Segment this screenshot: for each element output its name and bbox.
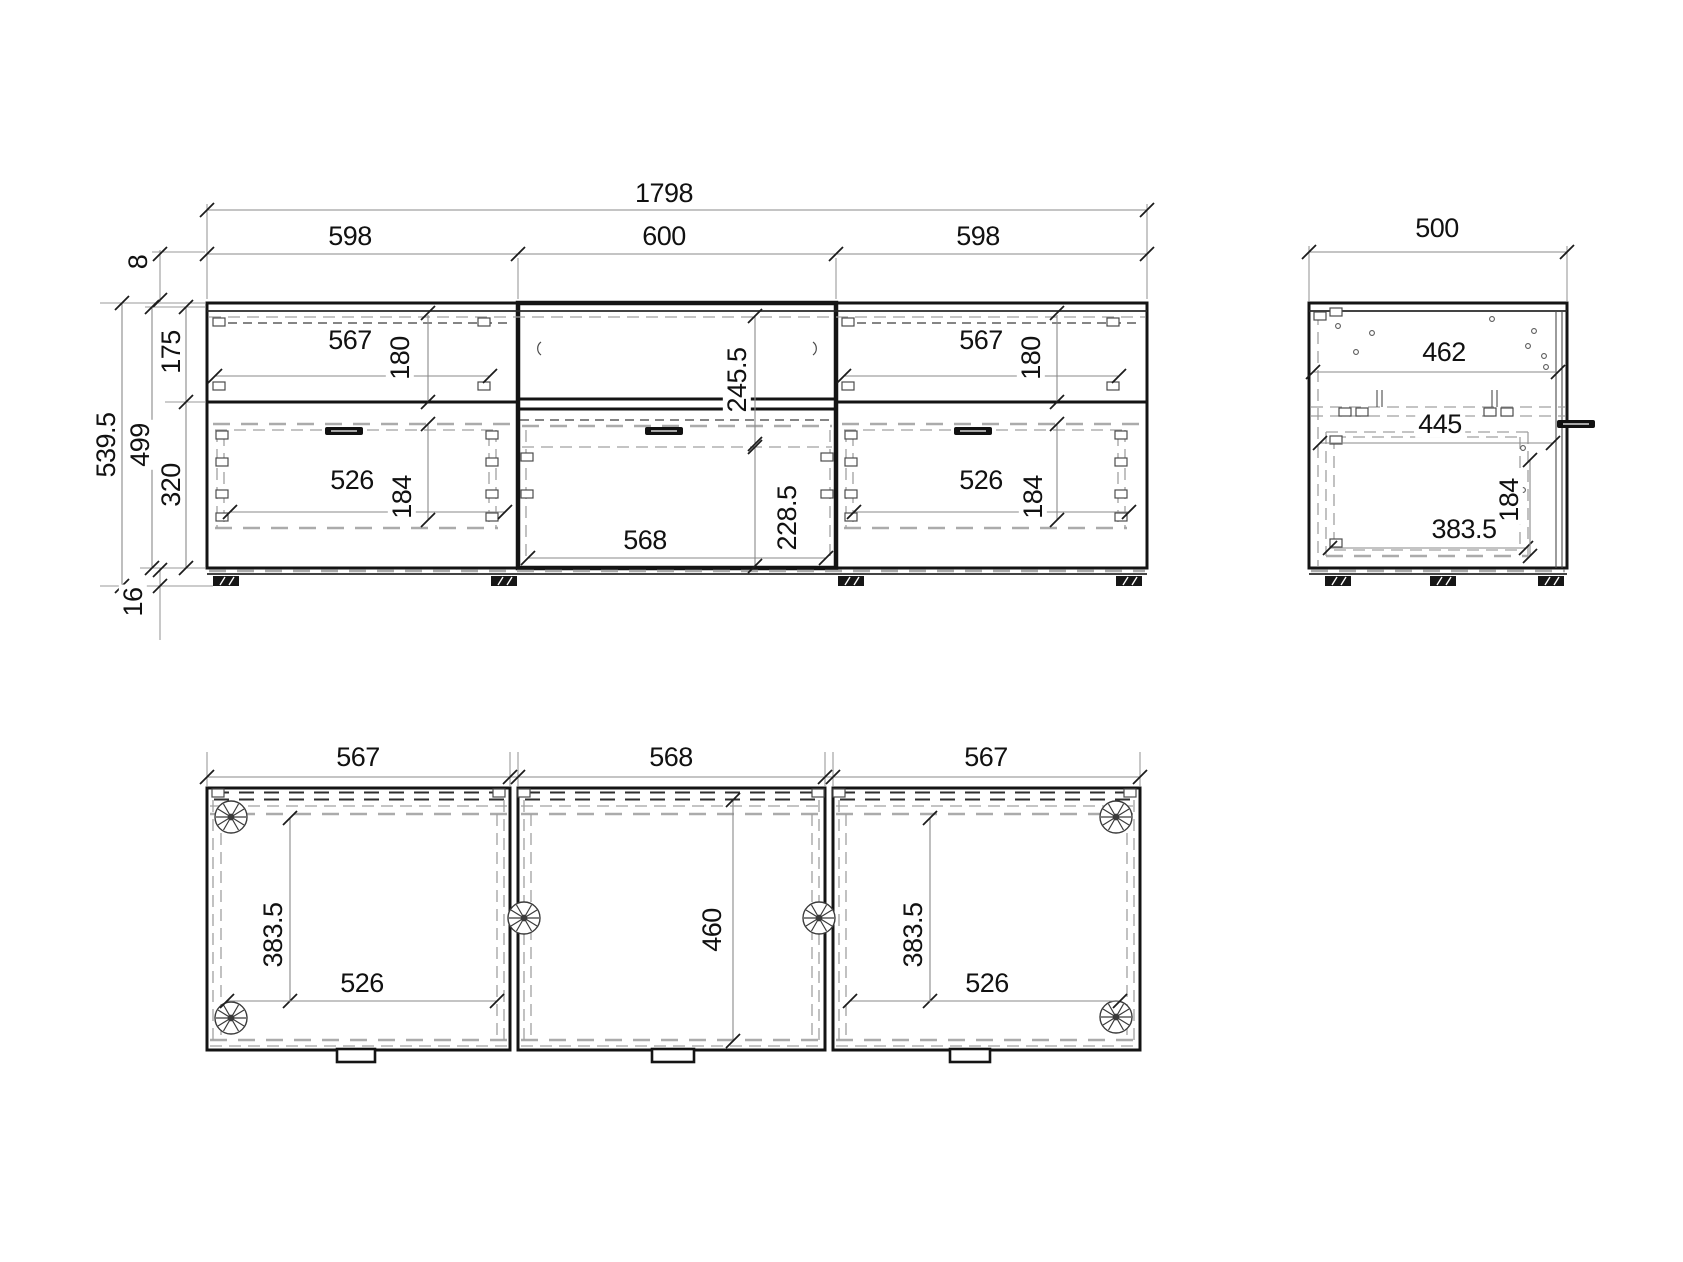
dim-right-drawer-bot-w: 526 xyxy=(956,466,1006,494)
side-handle xyxy=(1557,420,1595,428)
front-top-dimensions xyxy=(200,203,1154,299)
dim-middle-open-height: 245.5 xyxy=(723,344,751,415)
dim-plan-right-width: 526 xyxy=(962,969,1012,997)
dim-right-drawer-top-h: 180 xyxy=(1017,333,1045,383)
plan-casters xyxy=(215,801,1132,1034)
dim-side-drawer-height: 184 xyxy=(1495,475,1523,525)
technical-drawing-sheet: 1798 598 600 598 8 539.5 499 175 320 16 … xyxy=(0,0,1683,1262)
dim-left-drawer-bot-w: 526 xyxy=(327,466,377,494)
drawing-linework xyxy=(0,0,1683,1262)
front-view xyxy=(100,203,1154,640)
flap-handle xyxy=(645,427,683,435)
dim-plan-left-depth: 383.5 xyxy=(259,899,287,970)
dim-front-width-middle: 600 xyxy=(639,222,689,250)
dim-front-carcass-height: 499 xyxy=(126,420,154,470)
dim-front-total-width: 1798 xyxy=(632,179,696,207)
dim-side-drawer-depth: 383.5 xyxy=(1428,515,1499,543)
plan-boxes xyxy=(207,788,1140,1050)
dim-plan-right-depth: 383.5 xyxy=(899,899,927,970)
dim-right-drawer-top-w: 567 xyxy=(956,326,1006,354)
dim-plan-width-middle: 568 xyxy=(646,743,696,771)
dim-front-width-right: 598 xyxy=(953,222,1003,250)
dim-left-drawer-top-w: 567 xyxy=(325,326,375,354)
front-feet xyxy=(213,576,1142,586)
plan-hidden-lines xyxy=(210,789,1137,1046)
dim-side-depth: 500 xyxy=(1412,214,1462,242)
dim-plan-width-left: 567 xyxy=(333,743,383,771)
dim-front-width-left: 598 xyxy=(325,222,375,250)
dim-middle-inner-width: 568 xyxy=(620,526,670,554)
dim-front-total-height: 539.5 xyxy=(92,409,120,480)
dim-plan-left-width: 526 xyxy=(337,969,387,997)
dim-front-feet-height: 16 xyxy=(119,584,147,619)
dim-side-inner-top-w: 462 xyxy=(1419,338,1469,366)
bottom-view xyxy=(200,752,1147,1062)
dim-left-drawer-bot-h: 184 xyxy=(388,472,416,522)
dim-middle-flap-height: 228.5 xyxy=(773,482,801,553)
dim-side-inner-mid-w: 445 xyxy=(1415,410,1465,438)
dim-plan-width-right: 567 xyxy=(961,743,1011,771)
dim-left-drawer-top-h: 180 xyxy=(386,333,414,383)
dim-right-drawer-bot-h: 184 xyxy=(1019,472,1047,522)
dim-plan-middle-depth: 460 xyxy=(698,905,726,955)
drawer-handle xyxy=(954,427,992,435)
dim-front-top-gap: 8 xyxy=(124,252,152,273)
dim-front-lower-height: 320 xyxy=(157,460,185,510)
side-feet xyxy=(1325,576,1564,586)
dim-front-upper-height: 175 xyxy=(157,327,185,377)
drawer-handle xyxy=(325,427,363,435)
